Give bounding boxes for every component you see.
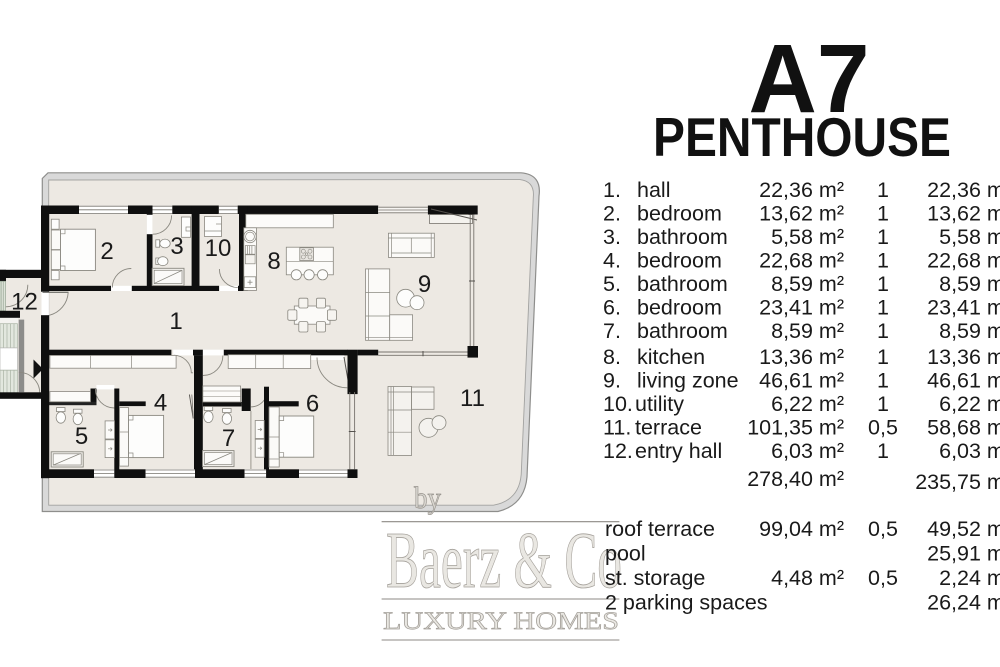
svg-text:6,03 m²: 6,03 m² [939,439,1000,463]
svg-text:11: 11 [460,385,485,412]
svg-text:1: 1 [877,439,889,463]
svg-text:4,48 m²: 4,48 m² [771,566,844,590]
svg-text:kitchen: kitchen [637,345,705,369]
svg-text:living zone: living zone [637,369,739,393]
svg-text:8.: 8. [603,345,621,369]
svg-text:6,03 m²: 6,03 m² [771,439,844,463]
svg-text:1.: 1. [603,178,621,202]
svg-text:0,5: 0,5 [868,416,898,440]
svg-text:12: 12 [11,289,38,316]
svg-text:22,36 m²: 22,36 m² [927,178,1000,202]
svg-text:3.: 3. [603,225,621,249]
svg-text:12.: 12. [603,439,633,463]
svg-text:278,40 m²: 278,40 m² [747,467,844,491]
svg-text:7.: 7. [603,319,621,343]
svg-text:entry hall: entry hall [635,439,722,463]
svg-text:1: 1 [877,296,889,320]
svg-text:1: 1 [877,319,889,343]
svg-text:st. storage: st. storage [605,566,705,590]
svg-text:1: 1 [877,392,889,416]
svg-text:Baerz & Co: Baerz & Co [386,517,622,605]
svg-text:13,62 m²: 13,62 m² [759,202,844,226]
svg-text:2.: 2. [603,202,621,226]
svg-text:22,68 m²: 22,68 m² [927,249,1000,273]
svg-text:101,35 m²: 101,35 m² [747,416,844,440]
svg-text:235,75 m²: 235,75 m² [915,470,1000,494]
svg-text:1: 1 [169,308,182,335]
svg-text:10: 10 [205,235,232,262]
svg-text:1: 1 [877,178,889,202]
svg-text:10.: 10. [603,392,633,416]
svg-text:LUXURY HOMES: LUXURY HOMES [383,608,619,635]
svg-text:1: 1 [877,225,889,249]
svg-text:58,68 m²: 58,68 m² [927,416,1000,440]
svg-text:1: 1 [877,272,889,296]
svg-text:2,24 m²: 2,24 m² [939,566,1000,590]
svg-text:23,41 m²: 23,41 m² [759,296,844,320]
svg-text:3: 3 [170,233,183,260]
svg-text:11.: 11. [603,416,631,440]
svg-text:1: 1 [877,345,889,369]
svg-text:terrace: terrace [635,416,702,440]
svg-text:13,36 m²: 13,36 m² [759,345,844,369]
svg-text:8,59 m²: 8,59 m² [771,272,844,296]
svg-text:46,61 m²: 46,61 m² [927,369,1000,393]
svg-text:4: 4 [154,390,167,417]
svg-text:1: 1 [877,369,889,393]
svg-text:6: 6 [306,391,319,418]
svg-text:25,91 m²: 25,91 m² [927,542,1000,566]
svg-text:pool: pool [605,542,646,566]
svg-text:7: 7 [222,425,235,452]
svg-text:by: by [414,480,441,515]
svg-text:46,61 m²: 46,61 m² [759,369,844,393]
svg-text:2: 2 [100,238,113,265]
svg-text:2 parking spaces: 2 parking spaces [605,591,768,615]
svg-text:9: 9 [418,271,431,298]
svg-text:8: 8 [267,248,280,275]
svg-text:13,62 m²: 13,62 m² [927,202,1000,226]
svg-text:5,58 m²: 5,58 m² [939,225,1000,249]
svg-text:22,36 m²: 22,36 m² [759,178,844,202]
svg-text:8,59 m²: 8,59 m² [771,319,844,343]
svg-text:6.: 6. [603,296,621,320]
svg-text:23,41 m²: 23,41 m² [927,296,1000,320]
svg-text:99,04 m²: 99,04 m² [759,517,844,541]
svg-text:0,5: 0,5 [868,517,898,541]
svg-text:6,22 m²: 6,22 m² [771,392,844,416]
svg-text:8,59 m²: 8,59 m² [939,319,1000,343]
svg-text:8,59 m²: 8,59 m² [939,272,1000,296]
svg-text:bedroom: bedroom [637,296,722,320]
svg-text:bathroom: bathroom [637,225,728,249]
svg-text:bedroom: bedroom [637,202,722,226]
svg-text:49,52 m²: 49,52 m² [927,517,1000,541]
svg-text:26,24 m²: 26,24 m² [927,591,1000,615]
svg-text:1: 1 [877,202,889,226]
svg-text:bedroom: bedroom [637,249,722,273]
svg-text:roof terrace: roof terrace [605,517,715,541]
svg-text:0,5: 0,5 [868,566,898,590]
svg-text:hall: hall [637,178,670,202]
svg-text:9.: 9. [603,369,621,393]
svg-text:bathroom: bathroom [637,272,728,296]
svg-text:5,58 m²: 5,58 m² [771,225,844,249]
svg-text:4.: 4. [603,249,621,273]
svg-text:13,36 m²: 13,36 m² [927,345,1000,369]
svg-text:1: 1 [877,249,889,273]
svg-text:bathroom: bathroom [637,319,728,343]
svg-text:5.: 5. [603,272,621,296]
svg-text:PENTHOUSE: PENTHOUSE [653,106,951,168]
svg-text:6,22 m²: 6,22 m² [939,392,1000,416]
svg-text:utility: utility [635,392,684,416]
svg-text:22,68 m²: 22,68 m² [759,249,844,273]
svg-text:5: 5 [75,423,88,450]
